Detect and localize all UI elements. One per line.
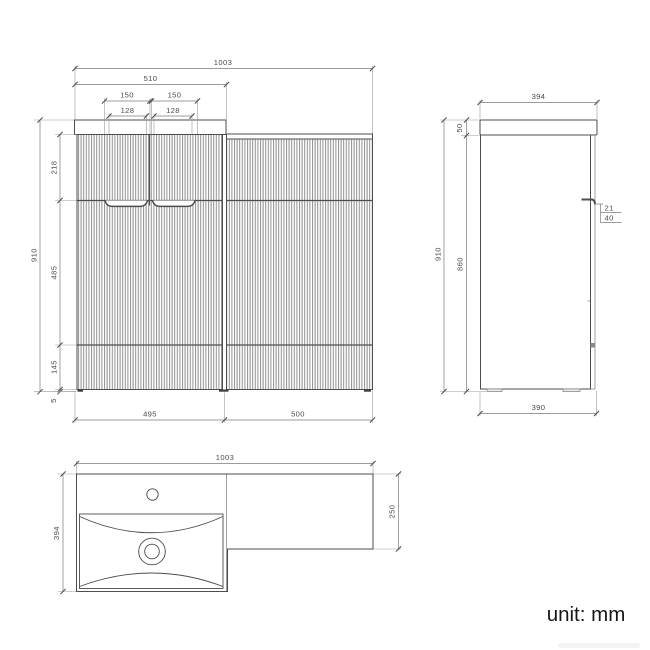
dim-label: 485 bbox=[50, 266, 59, 280]
side-cabinet bbox=[481, 135, 591, 389]
dim-plan-overall-width: 1003 bbox=[74, 453, 376, 474]
dim-label: 128 bbox=[166, 106, 180, 115]
dim-label: 1003 bbox=[214, 58, 233, 67]
dim-side-height-stack: 910 50 860 bbox=[434, 117, 487, 394]
dim-label: 218 bbox=[50, 161, 59, 175]
dim-label: 860 bbox=[456, 257, 465, 271]
dim-label: 21 bbox=[605, 204, 614, 213]
dim-side-cabinet-depth: 390 bbox=[477, 391, 599, 417]
side-structure bbox=[480, 120, 597, 392]
front-structure bbox=[75, 120, 373, 392]
dim-label: 910 bbox=[434, 247, 443, 261]
front-right-cabinet-flutes bbox=[227, 139, 373, 390]
dim-label: 1003 bbox=[216, 453, 235, 462]
side-view: 394 910 50 860 21 40 bbox=[434, 92, 622, 416]
dim-label: 150 bbox=[120, 91, 134, 100]
unit-note: unit: mm bbox=[547, 603, 626, 626]
scrollbar-remnant[interactable] bbox=[558, 643, 640, 648]
front-foot-center bbox=[219, 390, 229, 392]
dim-label: 394 bbox=[532, 92, 546, 101]
dim-plan-basin-depth: 394 bbox=[52, 471, 76, 594]
dim-front-bottom-widths: 495 500 bbox=[72, 391, 375, 423]
side-foot-front bbox=[563, 389, 580, 392]
vanity-technical-drawing: 1003 510 150 150 bbox=[0, 0, 650, 650]
dim-label: 390 bbox=[532, 403, 546, 412]
dim-label: 510 bbox=[144, 74, 158, 83]
dim-label: 394 bbox=[52, 526, 61, 540]
handle-recess-left bbox=[105, 201, 148, 207]
dim-label: 500 bbox=[291, 410, 305, 419]
dim-label: 150 bbox=[168, 91, 182, 100]
dim-label: 495 bbox=[143, 410, 157, 419]
dim-side-worktop-depth: 394 bbox=[477, 92, 599, 120]
side-worktop bbox=[480, 120, 597, 135]
dim-side-handle: 21 40 bbox=[595, 204, 622, 223]
front-foot-right bbox=[364, 390, 371, 392]
dim-label: 250 bbox=[388, 505, 397, 519]
plan-structure bbox=[77, 474, 374, 592]
dim-front-basin-width: 510 bbox=[72, 74, 229, 120]
side-foot-back bbox=[487, 389, 502, 392]
front-foot-left bbox=[78, 390, 84, 392]
dim-label: 910 bbox=[30, 248, 39, 262]
front-view: 1003 510 150 150 bbox=[30, 58, 376, 423]
side-drawer-joint-mark bbox=[591, 343, 596, 348]
dim-front-left-stack: 218 485 145 5 bbox=[49, 132, 77, 403]
plan-view: 1003 394 250 bbox=[52, 453, 401, 594]
dim-front-overall-height: 910 bbox=[30, 117, 77, 394]
handle-recess-right bbox=[153, 201, 196, 207]
plan-outline bbox=[77, 474, 374, 592]
dim-label: 40 bbox=[605, 214, 614, 223]
dim-label: 145 bbox=[50, 360, 59, 374]
dim-label: 128 bbox=[121, 106, 135, 115]
dim-plan-side-unit-depth: 250 bbox=[374, 471, 402, 551]
dim-label: 5 bbox=[49, 398, 58, 403]
dim-label: 50 bbox=[455, 123, 464, 132]
